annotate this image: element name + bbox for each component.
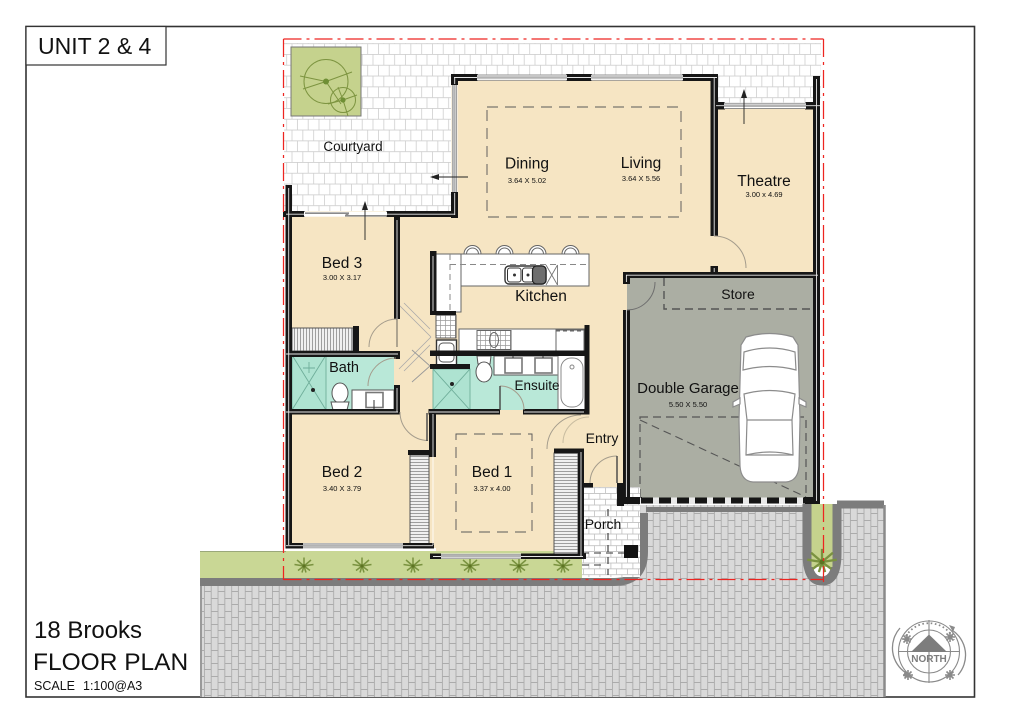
svg-text:Bed 1: Bed 1 [472,464,513,481]
svg-text:FLOOR PLAN: FLOOR PLAN [33,649,188,676]
svg-text:Living: Living [621,155,662,172]
svg-text:Courtyard: Courtyard [323,139,382,154]
svg-text:3.00 X 3.17: 3.00 X 3.17 [323,273,361,282]
svg-text:3.64 X 5.02: 3.64 X 5.02 [508,176,546,185]
svg-text:Kitchen: Kitchen [515,288,567,305]
svg-text:Double Garage: Double Garage [637,380,739,397]
svg-text:Theatre: Theatre [737,173,790,190]
svg-text:3.40 X 3.79: 3.40 X 3.79 [323,484,361,493]
svg-text:1:100@A3: 1:100@A3 [83,679,142,693]
svg-text:NORTH: NORTH [911,654,947,665]
svg-text:18 Brooks: 18 Brooks [34,617,142,644]
svg-text:Bed 3: Bed 3 [322,255,363,272]
svg-text:Dining: Dining [505,156,549,173]
svg-text:Bath: Bath [329,360,359,376]
svg-text:Store: Store [721,286,755,302]
svg-text:Bed 2: Bed 2 [322,464,363,481]
svg-text:3.00 x 4.69: 3.00 x 4.69 [745,190,782,199]
svg-text:Porch: Porch [585,516,622,532]
svg-text:Entry: Entry [586,430,619,446]
svg-text:3.37 x 4.00: 3.37 x 4.00 [473,484,510,493]
svg-text:3.64 X 5.56: 3.64 X 5.56 [622,174,660,183]
svg-text:Ensuite: Ensuite [514,378,559,393]
svg-text:SCALE: SCALE [34,679,75,693]
svg-text:UNIT 2 & 4: UNIT 2 & 4 [38,33,152,59]
svg-text:5.50 X 5.50: 5.50 X 5.50 [669,400,707,409]
